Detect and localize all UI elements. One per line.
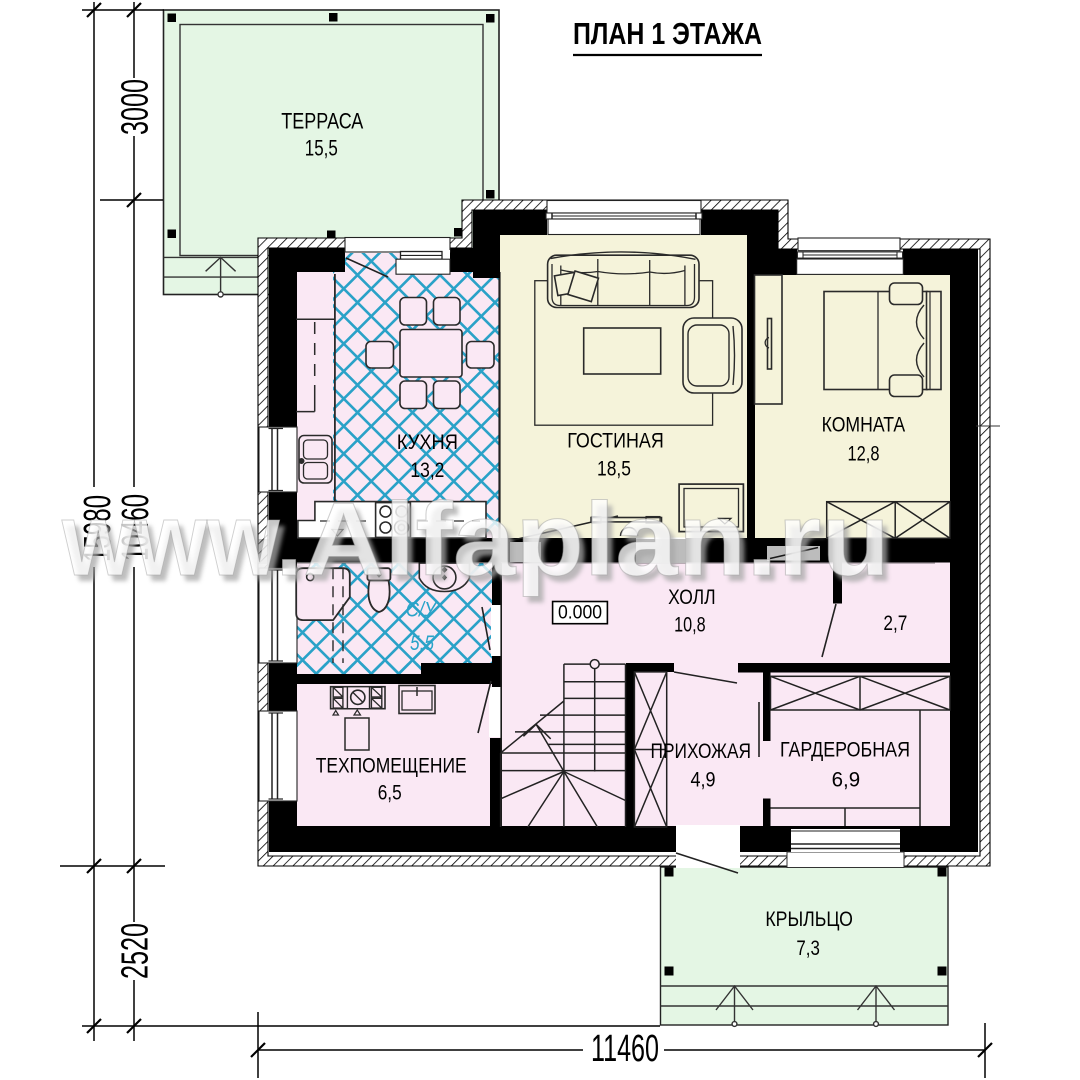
svg-text:18,5: 18,5 — [597, 457, 631, 481]
svg-text:ГОСТИНАЯ: ГОСТИНАЯ — [567, 428, 664, 452]
svg-text:www.: www. — [61, 482, 302, 598]
svg-text:0.000: 0.000 — [558, 603, 602, 624]
svg-text:ТЕРРАСА: ТЕРРАСА — [281, 108, 363, 133]
svg-text:4,9: 4,9 — [691, 768, 716, 792]
svg-text:ПРИХОЖАЯ: ПРИХОЖАЯ — [651, 739, 752, 763]
svg-text:11460: 11460 — [591, 1028, 659, 1070]
svg-text:6,5: 6,5 — [378, 780, 402, 804]
svg-text:Alfaplan.ru: Alfaplan.ru — [303, 482, 890, 598]
svg-text:КОМНАТА: КОМНАТА — [822, 413, 906, 437]
svg-text:12,8: 12,8 — [848, 442, 880, 466]
svg-text:ПЛАН 1 ЭТАЖА: ПЛАН 1 ЭТАЖА — [573, 16, 762, 51]
svg-text:КУХНЯ: КУХНЯ — [397, 430, 458, 454]
svg-text:6,9: 6,9 — [832, 768, 861, 792]
svg-text:7,3: 7,3 — [796, 936, 820, 960]
svg-text:2,7: 2,7 — [883, 611, 907, 635]
svg-text:ТЕХПОМЕЩЕНИЕ: ТЕХПОМЕЩЕНИЕ — [316, 754, 467, 778]
svg-text:КРЫЛЬЦО: КРЫЛЬЦО — [765, 907, 853, 931]
svg-text:10,8: 10,8 — [674, 613, 706, 637]
svg-text:3000: 3000 — [115, 79, 157, 135]
svg-text:13,2: 13,2 — [410, 458, 444, 482]
svg-text:2520: 2520 — [115, 923, 157, 979]
svg-text:ГАРДЕРОБНАЯ: ГАРДЕРОБНАЯ — [780, 738, 910, 762]
svg-text:15,5: 15,5 — [305, 136, 338, 161]
svg-text:5,5: 5,5 — [410, 632, 434, 655]
